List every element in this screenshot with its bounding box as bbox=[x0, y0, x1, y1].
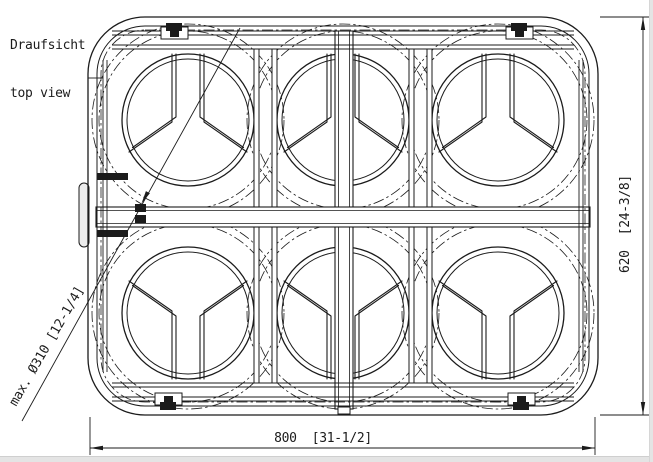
drawing-canvas: Draufsicht top view 800 [31-1/2] 620 [24… bbox=[0, 0, 653, 462]
view-title: Draufsicht top view bbox=[10, 6, 85, 134]
view-title-en: top view bbox=[10, 86, 85, 102]
view-title-de: Draufsicht bbox=[10, 38, 85, 54]
panel-edge-right bbox=[649, 0, 653, 462]
panel-edge-bottom bbox=[0, 456, 653, 462]
dimension-height-label: 620 [24-3/8] bbox=[618, 144, 636, 304]
dimension-width-label: 800 [31-1/2] bbox=[243, 431, 403, 446]
technical-drawing bbox=[0, 0, 653, 462]
